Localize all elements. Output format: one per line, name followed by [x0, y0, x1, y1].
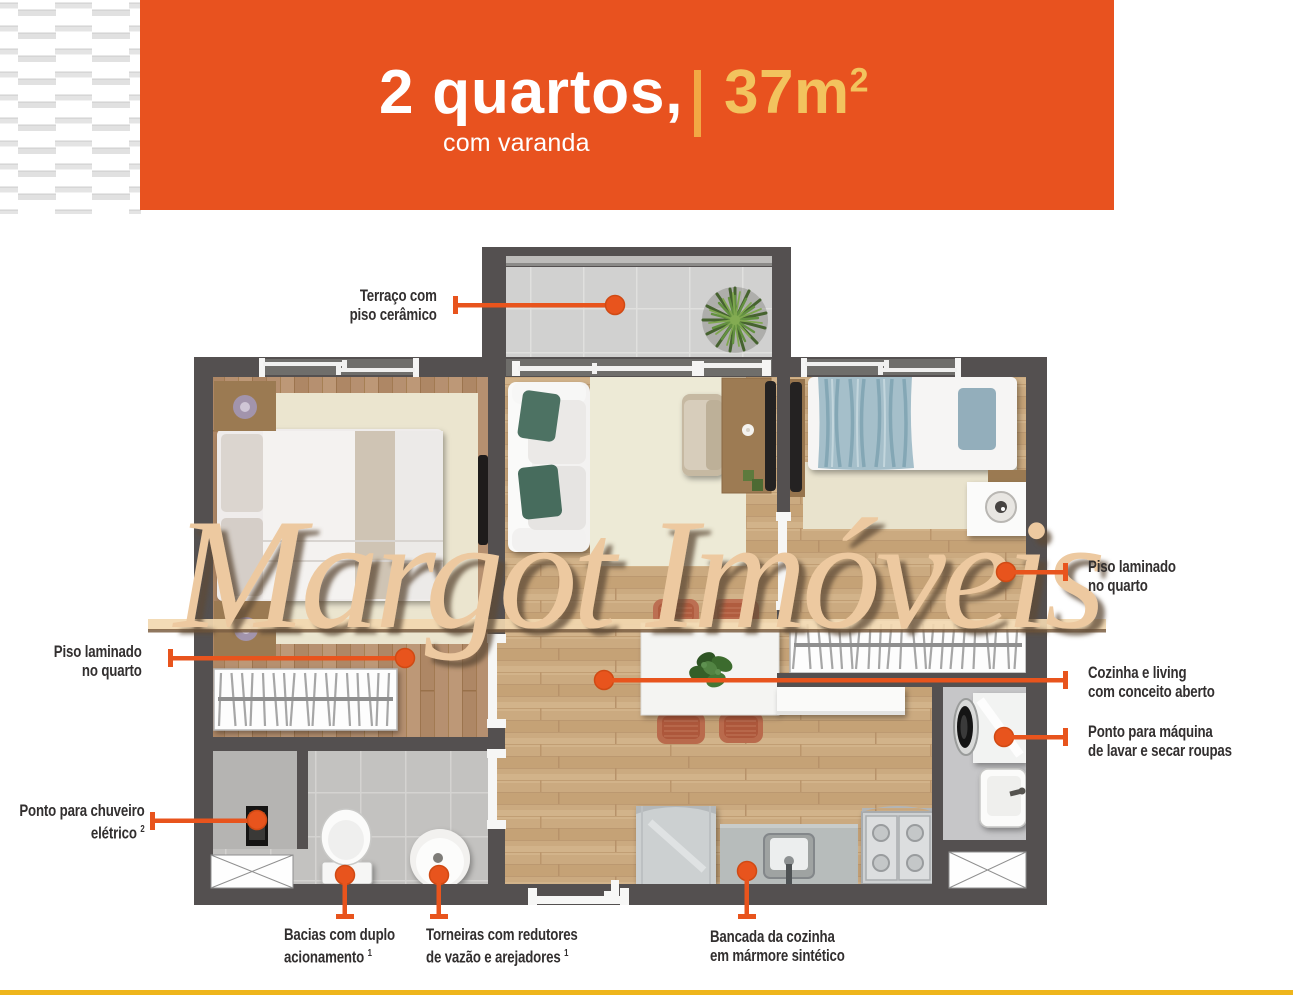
svg-text:Margot Imóveis: Margot Imóveis	[172, 487, 1106, 662]
